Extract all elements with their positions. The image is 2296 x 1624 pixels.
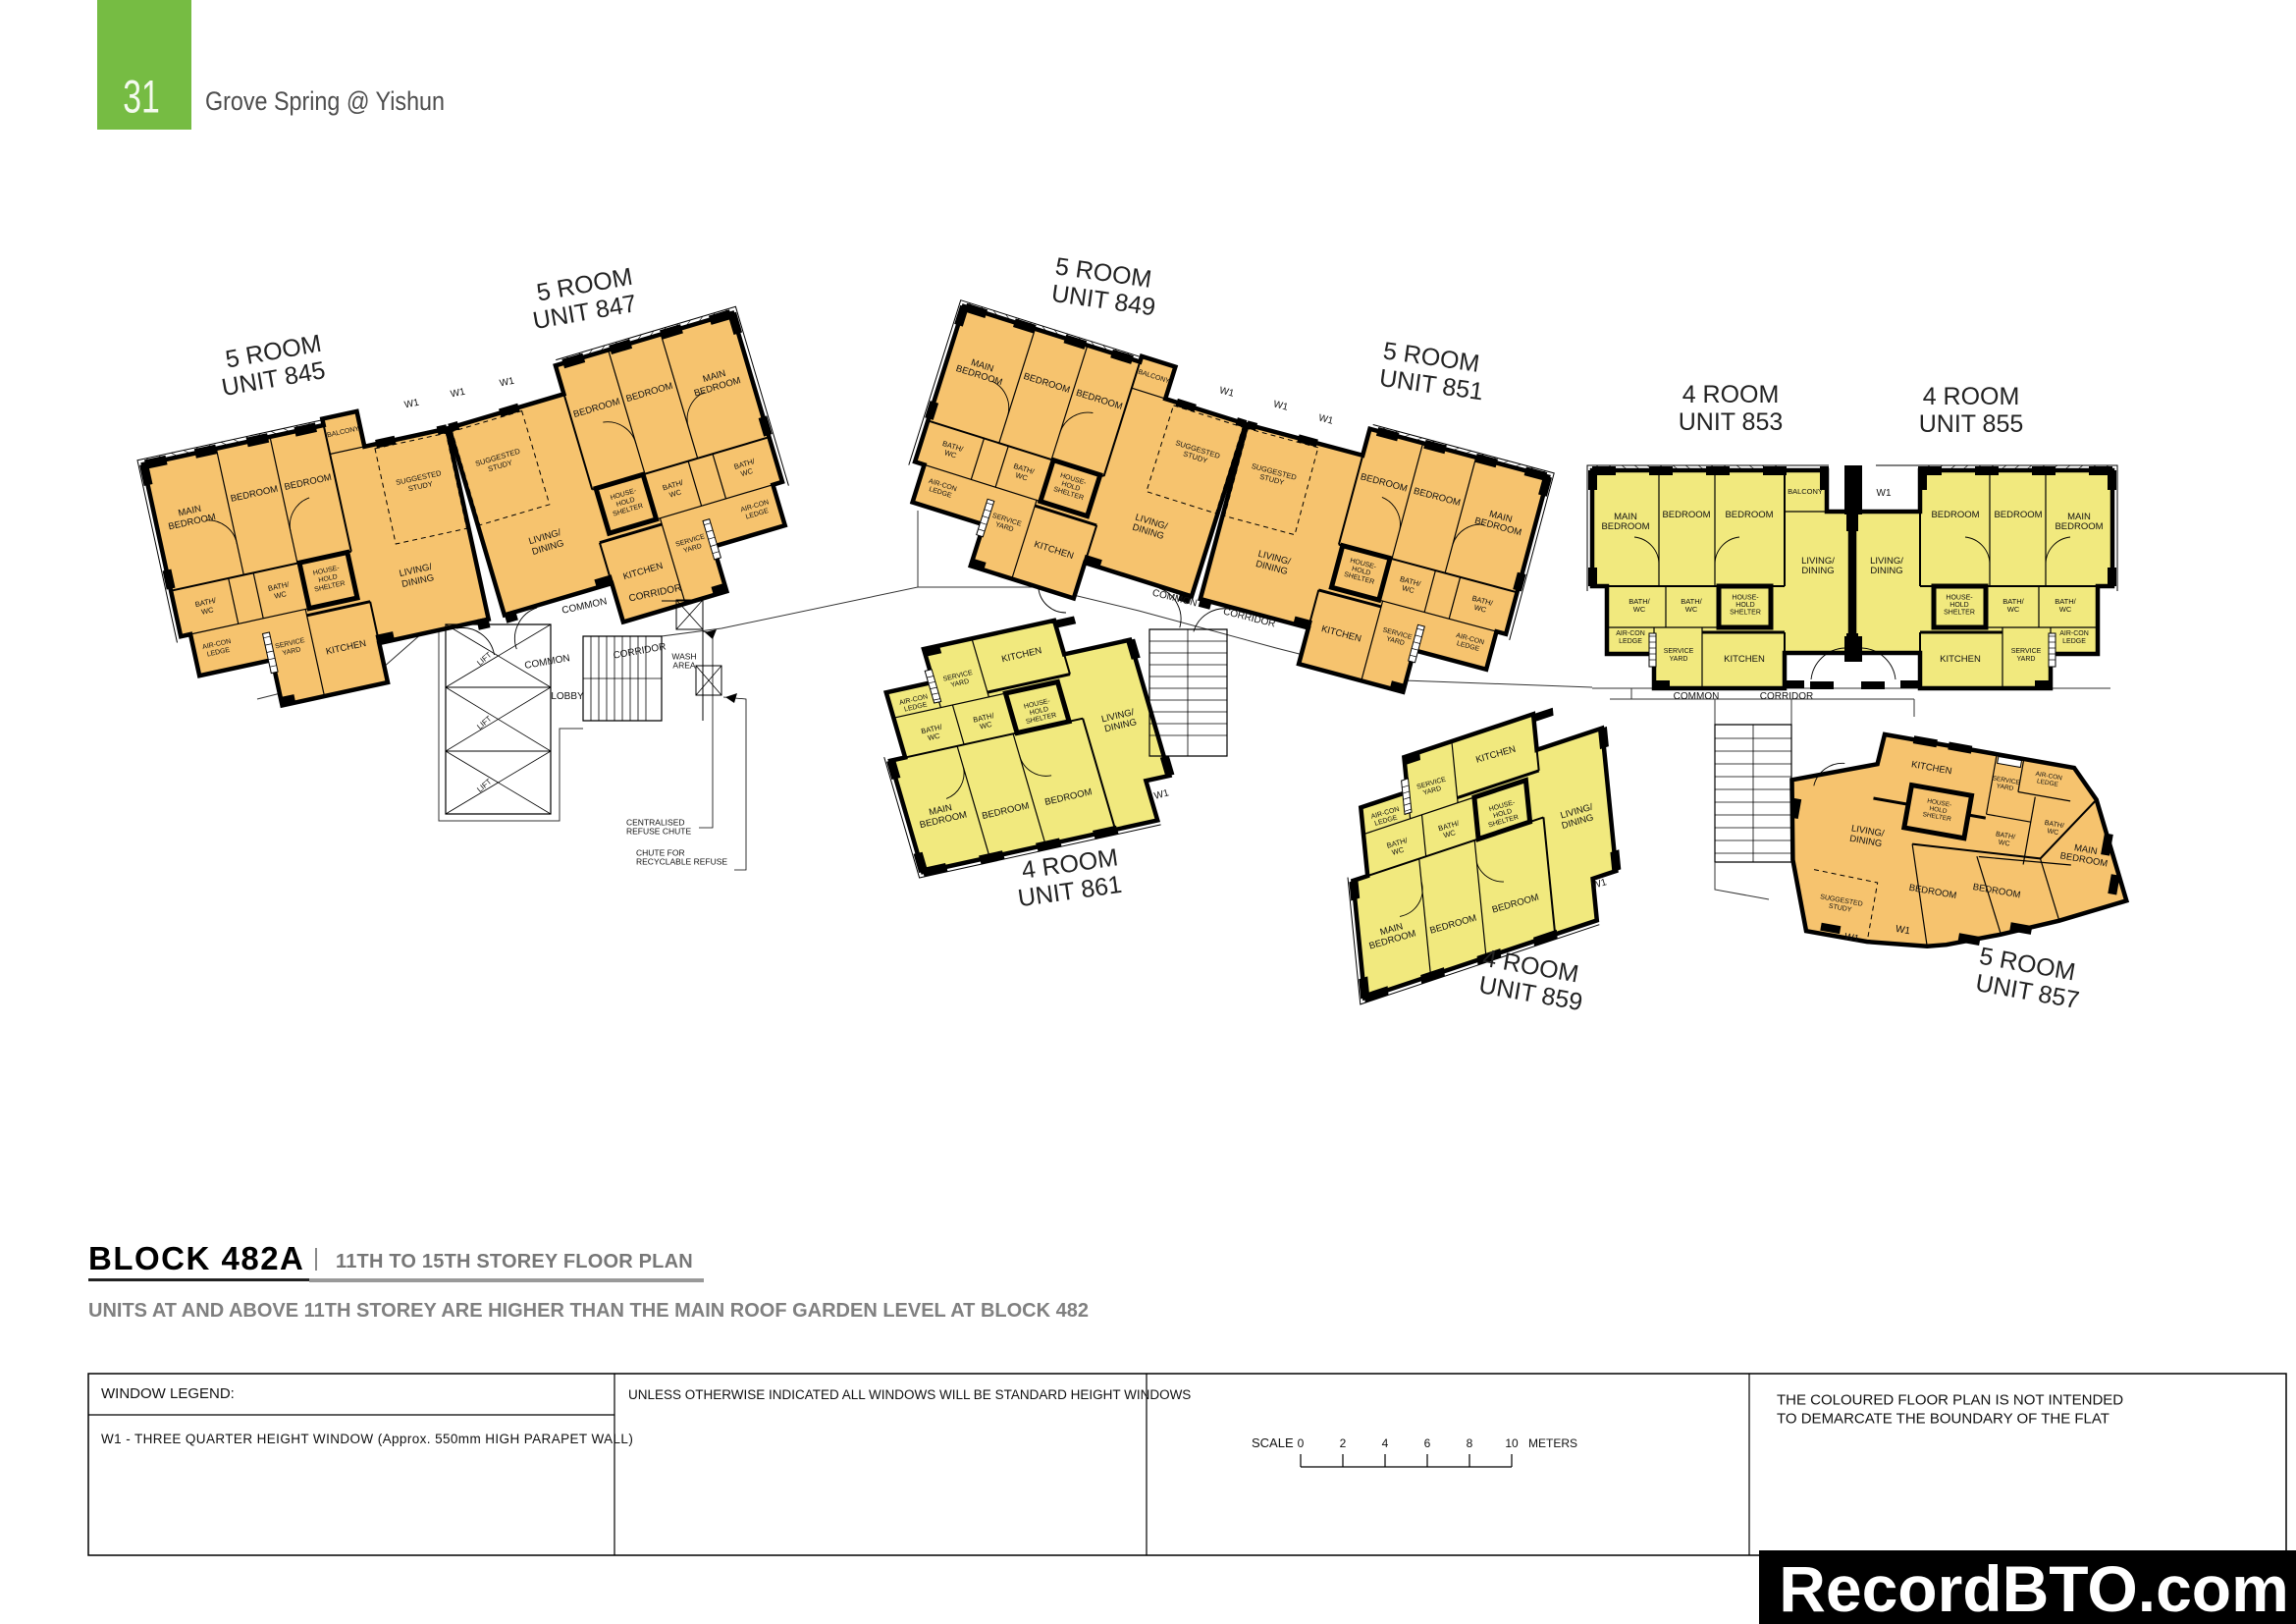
svg-text:4 ROOM: 4 ROOM	[1923, 383, 2020, 410]
svg-text:WC: WC	[1633, 605, 1646, 614]
svg-text:UNLESS OTHERWISE INDICATED: UNLESS OTHERWISE INDICATED ALL WINDOWS W…	[628, 1387, 1191, 1402]
svg-text:BEDROOM: BEDROOM	[2055, 521, 2103, 532]
svg-text:AREA: AREA	[672, 661, 695, 671]
svg-text:YARD: YARD	[2017, 656, 2036, 663]
svg-text:AIR-CON: AIR-CON	[1616, 630, 1645, 637]
svg-text:MAIN: MAIN	[1614, 512, 1637, 522]
svg-text:UNIT 853: UNIT 853	[1679, 408, 1784, 436]
svg-text:SHELTER: SHELTER	[1944, 610, 1975, 617]
svg-text:WINDOW LEGEND:: WINDOW LEGEND:	[101, 1385, 235, 1402]
svg-text:DINING: DINING	[1870, 566, 1902, 576]
svg-text:|: |	[313, 1244, 320, 1272]
svg-text:HOUSE-: HOUSE-	[1946, 594, 1973, 601]
svg-text:10: 10	[1505, 1436, 1519, 1450]
svg-text:LIVING/: LIVING/	[1801, 556, 1835, 567]
svg-text:KITCHEN: KITCHEN	[1724, 654, 1765, 665]
svg-text:W1: W1	[1877, 488, 1892, 499]
svg-text:WC: WC	[1685, 605, 1698, 614]
svg-text:RECYCLABLE REFUSE: RECYCLABLE REFUSE	[636, 857, 727, 867]
svg-text:WC: WC	[2007, 605, 2020, 614]
svg-text:SERVICE: SERVICE	[2011, 648, 2042, 655]
svg-text:TO DEMARCATE THE BOUNDARY OF T: TO DEMARCATE THE BOUNDARY OF THE FLAT	[1777, 1411, 2109, 1428]
svg-text:BEDROOM: BEDROOM	[1994, 510, 2042, 520]
svg-text:11TH TO 15TH STOREY FLOOR PLAN: 11TH TO 15TH STOREY FLOOR PLAN	[336, 1251, 693, 1272]
svg-text:SERVICE: SERVICE	[1664, 648, 1694, 655]
svg-text:LEDGE: LEDGE	[2062, 638, 2086, 645]
svg-text:UNIT 855: UNIT 855	[1919, 410, 2024, 438]
svg-text:BEDROOM: BEDROOM	[1662, 510, 1710, 520]
svg-text:UNITS AT AND ABOVE 11TH STOREY: UNITS AT AND ABOVE 11TH STOREY ARE HIGHE…	[88, 1300, 1089, 1322]
svg-text:HOUSE-: HOUSE-	[1732, 594, 1759, 601]
svg-text:SHELTER: SHELTER	[1730, 610, 1761, 617]
svg-text:Grove Spring @ Yishun: Grove Spring @ Yishun	[205, 87, 445, 117]
svg-text:31: 31	[123, 71, 160, 123]
svg-text:YARD: YARD	[1670, 656, 1688, 663]
svg-text:REFUSE CHUTE: REFUSE CHUTE	[626, 827, 691, 837]
svg-text:AIR-CON: AIR-CON	[2059, 630, 2089, 637]
svg-text:MAIN: MAIN	[2067, 512, 2091, 522]
svg-text:CORRIDOR: CORRIDOR	[1760, 691, 1813, 702]
svg-text:BEDROOM: BEDROOM	[1725, 510, 1773, 520]
svg-text:DINING: DINING	[1801, 566, 1834, 576]
svg-text:LIVING/: LIVING/	[1870, 556, 1903, 567]
svg-text:4: 4	[1382, 1436, 1389, 1450]
svg-text:KITCHEN: KITCHEN	[1940, 654, 1981, 665]
svg-text:W1 - THREE QUARTER HEIGHT: W1 - THREE QUARTER HEIGHT WINDOW (Approx…	[101, 1432, 633, 1446]
svg-text:SCALE: SCALE	[1252, 1435, 1294, 1450]
svg-text:WC: WC	[2059, 605, 2072, 614]
svg-text:HOLD: HOLD	[1735, 602, 1754, 609]
svg-text:HOLD: HOLD	[1949, 602, 1968, 609]
svg-text:LEDGE: LEDGE	[1619, 638, 1642, 645]
svg-text:4 ROOM: 4 ROOM	[1682, 381, 1780, 408]
svg-text:THE COLOURED FLOOR PLAN IS NOT: THE COLOURED FLOOR PLAN IS NOT INTENDED	[1777, 1392, 2123, 1409]
svg-text:BLOCK 482A: BLOCK 482A	[88, 1240, 304, 1276]
svg-text:BEDROOM: BEDROOM	[1601, 521, 1649, 532]
svg-text:LOBBY: LOBBY	[551, 691, 584, 702]
svg-text:8: 8	[1467, 1436, 1473, 1450]
svg-text:BALCONY: BALCONY	[1788, 487, 1823, 496]
svg-text:COMMON: COMMON	[1674, 691, 1720, 702]
svg-text:RecordBTO.com: RecordBTO.com	[1779, 1552, 2289, 1624]
svg-text:BEDROOM: BEDROOM	[1931, 510, 1979, 520]
svg-text:2: 2	[1340, 1436, 1347, 1450]
svg-text:0: 0	[1298, 1436, 1305, 1450]
svg-text:6: 6	[1424, 1436, 1431, 1450]
svg-text:METERS: METERS	[1528, 1436, 1577, 1450]
